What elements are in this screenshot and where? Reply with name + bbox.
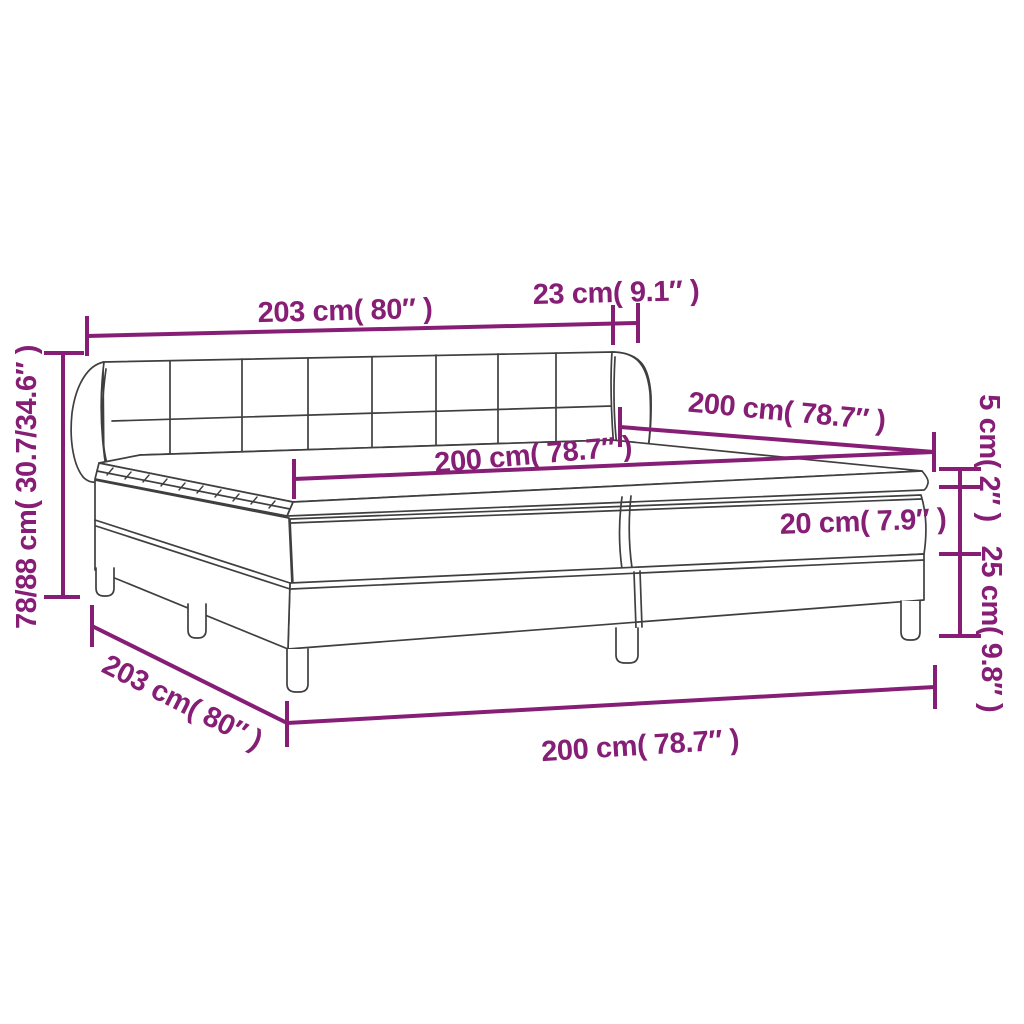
bed-leg <box>616 628 638 663</box>
label-total-height: 78/88 cm( 30.7/34.6″ ) <box>11 345 43 629</box>
bed-leg <box>287 649 308 692</box>
bed-leg <box>96 568 114 596</box>
bed-leg <box>188 604 206 638</box>
label-headboard-depth: 23 cm( 9.1″ ) <box>532 275 699 311</box>
bed-diagram-svg: 203 cm( 80″ ) 23 cm( 9.1″ ) 200 cm( 78.7… <box>0 0 1024 1024</box>
label-mattress-height: 20 cm( 7.9″ ) <box>779 503 947 541</box>
label-base-height: 25 cm( 9.8″ ) <box>975 546 1007 713</box>
bed-leg <box>901 601 920 640</box>
dimension-diagram: 203 cm( 80″ ) 23 cm( 9.1″ ) 200 cm( 78.7… <box>0 0 1024 1024</box>
label-headboard-width: 203 cm( 80″ ) <box>257 293 432 329</box>
label-topper-height: 5 cm( 2″ ) <box>973 394 1005 522</box>
